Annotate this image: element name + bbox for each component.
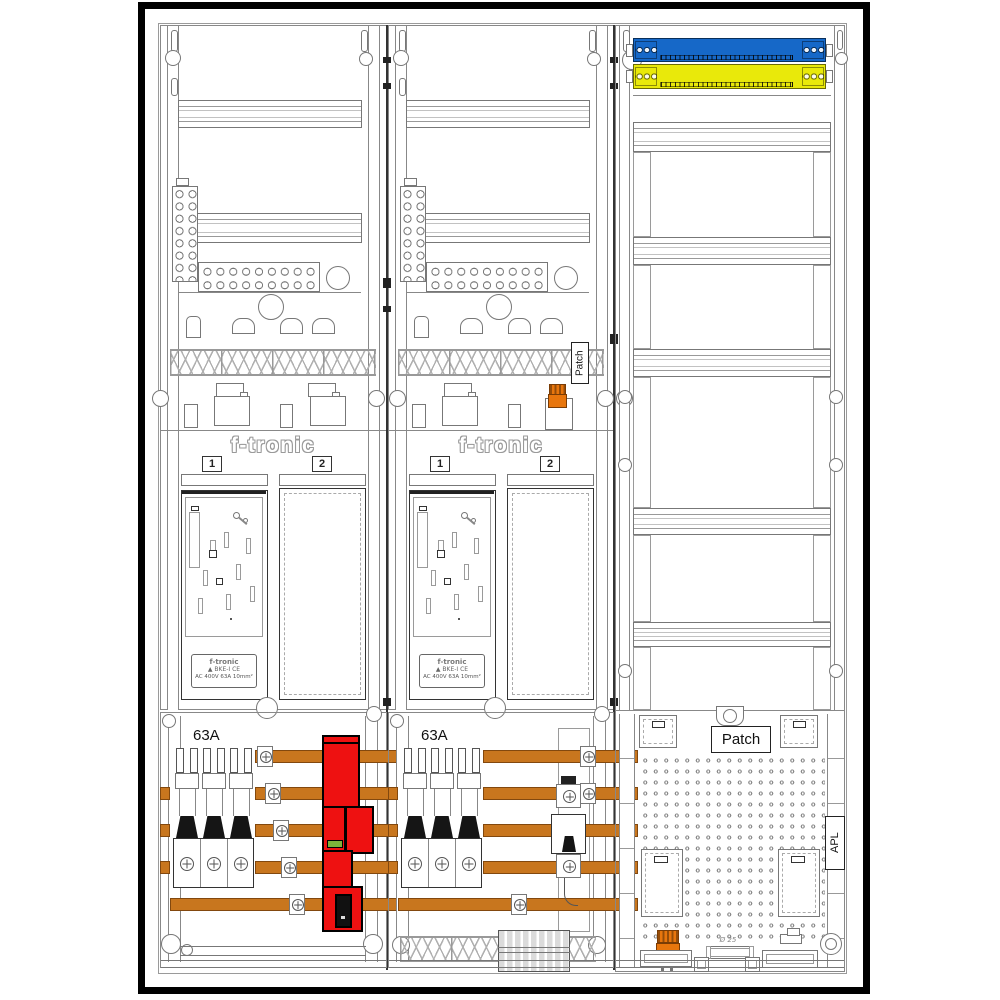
shelf-line (633, 95, 831, 96)
fuse-stem (407, 789, 424, 816)
cutout-slot (793, 721, 806, 728)
terminal-screw (435, 857, 449, 871)
device-cap (561, 776, 576, 784)
din-rail (633, 237, 831, 265)
cutout-slot (652, 721, 665, 728)
busbar-stub (388, 787, 398, 800)
busbar-stub (160, 787, 170, 800)
sls-switch-top (322, 735, 360, 810)
cable-arch (232, 318, 255, 334)
pe-terminal-bar (633, 64, 826, 89)
bushing (326, 266, 350, 290)
sticker-brand: f-tronic (420, 658, 484, 666)
base-divider (200, 839, 201, 887)
terminal-holes (635, 67, 657, 86)
label-strip (507, 474, 594, 486)
terminal-strip-vertical (400, 186, 426, 282)
din-rail (178, 100, 362, 128)
divider-clip (383, 278, 391, 288)
mount-hole (829, 458, 843, 472)
row-pillar (633, 647, 651, 710)
cutout-slot (654, 856, 668, 863)
plate-detail (203, 570, 208, 586)
plate-detail (444, 578, 451, 585)
fuse-grip (175, 773, 199, 789)
cable-arch (540, 318, 563, 334)
sls-window (335, 894, 352, 928)
step-bracket (787, 928, 800, 936)
device-terminal (556, 854, 581, 878)
terminal-screw (234, 857, 248, 871)
plate-detail (478, 586, 483, 602)
plate-detail (417, 512, 428, 568)
fuse-prong (230, 748, 238, 773)
cabinet-drawing: f-tronic 1 2 f-tronic ▲ BKE-I CE AC 400V (0, 0, 1000, 1000)
grommet-inner (710, 948, 750, 957)
busbar-clamp (281, 857, 297, 878)
terminal-strip-vertical (172, 186, 198, 282)
busbar-clamp (257, 746, 273, 767)
din-rail (633, 349, 831, 377)
divider-clip (383, 83, 391, 89)
side-channel (834, 26, 845, 710)
busbar-clamp (580, 783, 596, 804)
lattice-brace (170, 349, 376, 376)
busbar-clamp (273, 820, 289, 841)
divider-clip (383, 698, 391, 706)
mount-hole (162, 714, 176, 728)
mount-hole (829, 664, 843, 678)
base-divider (455, 839, 456, 887)
mount-block (442, 396, 478, 426)
orange-connector-top (657, 930, 679, 943)
plate-detail (224, 532, 229, 548)
plate-detail (437, 550, 445, 558)
fuse-prong (431, 748, 439, 773)
mount-hole (165, 50, 181, 66)
patch-label-top: Patch (571, 342, 589, 384)
hinge-slot (361, 30, 368, 52)
terminal-strip-horizontal (426, 262, 548, 292)
bar-end-clip (626, 44, 633, 57)
row-pillar (813, 647, 831, 710)
shelf-line (179, 292, 361, 293)
fuse-prong (190, 748, 198, 773)
base-divider (227, 839, 228, 887)
bushing (554, 266, 578, 290)
mount-block (214, 396, 250, 426)
meter-plate (413, 497, 491, 637)
bar-end-clip (626, 70, 633, 83)
fuse-stem (179, 789, 196, 816)
fuse-prong (244, 748, 252, 773)
terminal-strip-horizontal (198, 262, 320, 292)
fuse-grip (457, 773, 481, 789)
mount-hole (835, 52, 848, 65)
device-wire (564, 878, 578, 906)
sls-indicator (327, 840, 343, 848)
fuse-prong (418, 748, 426, 773)
fuse-prong (203, 748, 211, 773)
fuse-prong (445, 748, 453, 773)
terminal-screw (180, 857, 194, 871)
row-pillar (813, 535, 831, 622)
top-clamp-hole (723, 709, 737, 723)
plate-detail (246, 538, 251, 554)
row-pillar (813, 265, 831, 349)
device-terminal (556, 784, 581, 808)
row-pillar (633, 377, 651, 508)
switch-rating-label: 63A (421, 728, 465, 744)
hinge-slot (589, 30, 596, 52)
sticker-type: ▲ BKE-I CE (420, 666, 484, 674)
sticker-rating: AC 400V 63A 10mm² (192, 674, 256, 681)
plate-detail (464, 564, 469, 580)
mount-block (310, 396, 346, 426)
sls-window-dot (341, 916, 345, 919)
mount-hole (587, 52, 601, 66)
plate-detail (431, 570, 436, 586)
plate-detail (474, 538, 479, 554)
mount-hole (618, 458, 632, 472)
hinge-slot (171, 30, 178, 52)
plate-dot (458, 618, 460, 620)
row-pillar (633, 152, 651, 237)
terminal-screw (408, 857, 422, 871)
bay-2-inner-frame (512, 493, 589, 695)
plate-detail (226, 594, 231, 610)
terminal-screw (207, 857, 221, 871)
plate-detail (189, 512, 200, 568)
cutout-slot (791, 856, 805, 863)
cable-arch (280, 318, 303, 334)
field-divider-line (389, 430, 613, 431)
apl-label: APL (825, 816, 845, 870)
hinge-slot (171, 78, 178, 96)
sls-cap-line (324, 742, 358, 744)
terminal-block-mid (498, 947, 570, 953)
hinge-slot (837, 30, 843, 50)
field-divider-line (161, 430, 386, 431)
bay-tag-2: 2 (540, 456, 560, 472)
mount-hole (618, 664, 632, 678)
patch-label: Patch (711, 726, 771, 753)
fuse-prong (404, 748, 412, 773)
din-rail (633, 622, 831, 647)
side-channel (619, 26, 630, 710)
mount-hole (363, 934, 383, 954)
base-divider (428, 839, 429, 887)
label-strip (181, 474, 268, 486)
meter-plate (185, 497, 263, 637)
bay-2-inner-frame (284, 493, 361, 695)
busbar-clamp (289, 894, 305, 915)
fuse-stem (206, 789, 223, 816)
bar-end-clip (826, 70, 833, 83)
cable-gland-inner (825, 938, 837, 950)
busbar-stub (160, 824, 170, 837)
terminal-screw (462, 857, 476, 871)
mount-hole (393, 50, 409, 66)
plate-detail (426, 598, 431, 614)
fuse-grip (430, 773, 454, 789)
fuse-stem (233, 789, 250, 816)
busbar-clamp (580, 746, 596, 767)
patch-connector-body (548, 394, 567, 408)
divider-clip (383, 57, 391, 63)
din-rail (178, 213, 362, 243)
label-strip (279, 474, 366, 486)
busbar-stub (160, 861, 170, 874)
divider-clip (383, 306, 391, 312)
busbar-stub (388, 861, 398, 874)
mount-block (184, 404, 198, 428)
terminal-holes (802, 67, 824, 86)
fuse-prong (458, 748, 466, 773)
hinge-slot (399, 30, 406, 52)
brand-header: f-tronic (200, 434, 346, 458)
plate-detail (419, 506, 427, 511)
terminal-cap (176, 178, 189, 186)
mount-hole (389, 390, 406, 407)
terminal-cap (404, 178, 417, 186)
mount-hole (618, 390, 632, 404)
bar-end-clip (826, 44, 833, 57)
din-rail (406, 100, 590, 128)
mount-hole (161, 934, 181, 954)
panel-bottom-band (180, 946, 366, 956)
bay-tag-1: 1 (202, 456, 222, 472)
plate-detail (454, 594, 459, 610)
mount-hole (390, 714, 404, 728)
plate-detail (191, 506, 199, 511)
fuse-grip (403, 773, 427, 789)
plate-dot (230, 618, 232, 620)
panel-bottom-edge (161, 960, 386, 968)
plate-detail (209, 550, 217, 558)
row-pillar (633, 265, 651, 349)
bushing (258, 294, 284, 320)
mount-hole (829, 390, 843, 404)
busbar-clamp (511, 894, 527, 915)
mount-block (280, 404, 293, 428)
label-strip (409, 474, 496, 486)
fuse-grip (202, 773, 226, 789)
grommet-label: Ø 25 (708, 936, 748, 945)
terminal-ticks (660, 55, 793, 60)
cable-plug (414, 316, 429, 338)
bay-top-rail (410, 491, 494, 494)
panel-bottom-edge (389, 960, 613, 968)
neutral-terminal-bar (633, 38, 826, 62)
cable-arch (312, 318, 335, 334)
row-pillar (813, 152, 831, 237)
plate-detail (216, 578, 223, 585)
fuse-prong (176, 748, 184, 773)
fuse-grip (229, 773, 253, 789)
mount-hole (152, 390, 169, 407)
cable-plug (186, 316, 201, 338)
fuse-stem (434, 789, 451, 816)
sls-switch-lower (322, 850, 353, 890)
hinge-slot (399, 78, 406, 96)
mount-hole (594, 706, 610, 722)
busbar-stub (388, 824, 398, 837)
plate-detail (452, 532, 457, 548)
mount-hole (368, 390, 385, 407)
sticker-brand: f-tronic (192, 658, 256, 666)
plate-detail (236, 564, 241, 580)
fuse-prong (217, 748, 225, 773)
din-rail (633, 508, 831, 535)
rating-sticker: f-tronic ▲ BKE-I CE AC 400V 63A 10mm² (419, 654, 485, 688)
bay-top-rail (182, 491, 266, 494)
plate-detail (250, 586, 255, 602)
row-pillar (633, 535, 651, 622)
busbar-clamp (265, 783, 281, 804)
side-segment-column (619, 714, 635, 968)
terminal-holes (802, 41, 824, 59)
bay-tag-1: 1 (430, 456, 450, 472)
bushing (486, 294, 512, 320)
rating-sticker: f-tronic ▲ BKE-I CE AC 400V 63A 10mm² (191, 654, 257, 688)
shelf-line (407, 292, 589, 293)
cable-arch (460, 318, 483, 334)
bay-tag-2: 2 (312, 456, 332, 472)
sticker-type: ▲ BKE-I CE (192, 666, 256, 674)
plate-detail (198, 598, 203, 614)
mount-block (412, 404, 426, 428)
sls-switch-ext (345, 806, 374, 854)
panel-bottom-edge (616, 960, 844, 968)
fuse-prong (472, 748, 480, 773)
terminal-ticks (660, 82, 793, 87)
din-rail (406, 213, 590, 243)
sticker-rating: AC 400V 63A 10mm² (420, 674, 484, 681)
mount-block (508, 404, 521, 428)
mount-hole (359, 52, 373, 66)
terminal-holes (635, 41, 657, 59)
din-rail (633, 122, 831, 152)
mount-hole (366, 706, 382, 722)
mount-hole (597, 390, 614, 407)
cable-arch (508, 318, 531, 334)
fuse-stem (461, 789, 478, 816)
switch-rating-label: 63A (193, 728, 237, 744)
brand-header: f-tronic (428, 434, 574, 458)
